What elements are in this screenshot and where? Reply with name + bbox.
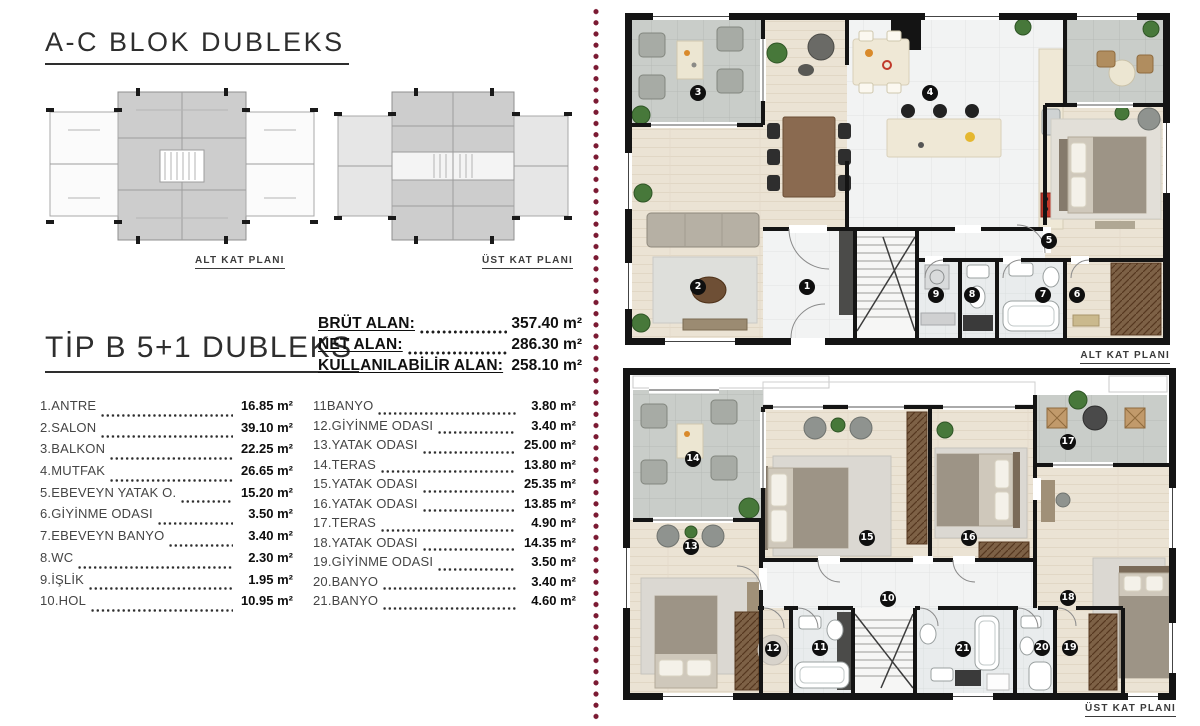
room-area: 1.95 m² [237, 572, 293, 587]
room-list-right: 11BANYO3.80 m²12.GİYİNME ODASI3.40 m²13.… [313, 398, 576, 613]
room-list-item: 21.BANYO4.60 m² [313, 593, 576, 613]
room-list-item: 13.YATAK ODASI25.00 m² [313, 437, 576, 457]
room-number-marker: 6 [1069, 287, 1085, 303]
dot-leader [377, 411, 516, 416]
dot-leader [419, 329, 507, 335]
room-number-marker: 21 [955, 641, 971, 657]
plan-ust-kat-caption: ÜST KAT PLANI [1085, 703, 1176, 717]
dot-leader [382, 586, 516, 591]
dot-leader [380, 528, 516, 533]
dot-leader [437, 567, 516, 572]
room-name: 10.HOL [40, 593, 86, 608]
room-area: 13.80 m² [520, 457, 576, 472]
room-list-item: 1.ANTRE16.85 m² [40, 398, 293, 420]
dot-leader [407, 350, 508, 356]
dot-leader [422, 547, 516, 552]
area-label: NET ALAN: [318, 336, 403, 354]
area-summary-row: KULLANILABİLİR ALAN:258.10 m² [318, 357, 582, 378]
room-area: 3.80 m² [520, 398, 576, 413]
room-name: 4.MUTFAK [40, 463, 105, 478]
dot-leader [168, 543, 233, 548]
room-area: 3.50 m² [237, 506, 293, 521]
room-name: 5.EBEVEYN YATAK O. [40, 485, 176, 500]
area-value: 357.40 m² [511, 315, 582, 333]
room-area: 39.10 m² [237, 420, 293, 435]
room-list-item: 5.EBEVEYN YATAK O.15.20 m² [40, 485, 293, 507]
room-list-item: 3.BALKON22.25 m² [40, 441, 293, 463]
dot-leader [382, 606, 516, 611]
room-name: 6.GİYİNME ODASI [40, 506, 153, 521]
floor-plan-alt-kat: 342198765 [625, 13, 1170, 345]
room-number-marker: 3 [690, 85, 706, 101]
room-area: 26.65 m² [237, 463, 293, 478]
room-area: 25.35 m² [520, 476, 576, 491]
room-number-marker: 18 [1060, 590, 1076, 606]
room-number-marker: 12 [765, 641, 781, 657]
area-summary-row: NET ALAN:286.30 m² [318, 336, 582, 357]
room-list-item: 7.EBEVEYN BANYO3.40 m² [40, 528, 293, 550]
room-area: 22.25 m² [237, 441, 293, 456]
dot-leader [100, 413, 233, 418]
room-name: 9.İŞLİK [40, 572, 84, 587]
floor-plan-ust-kat: 141713151610181211212019 [623, 368, 1180, 700]
dot-leader [422, 450, 516, 455]
thumbnail-ust-kat: ÜST KAT PLANI [330, 86, 580, 271]
room-name: 20.BANYO [313, 574, 378, 589]
room-area: 3.40 m² [520, 418, 576, 433]
room-area: 16.85 m² [237, 398, 293, 413]
room-area: 2.30 m² [237, 550, 293, 565]
room-list-item: 15.YATAK ODASI25.35 m² [313, 476, 576, 496]
thumbnail-alt-kat-drawing [40, 86, 325, 246]
room-area: 4.90 m² [520, 515, 576, 530]
room-name: 16.YATAK ODASI [313, 496, 418, 511]
room-number-marker: 8 [964, 287, 980, 303]
room-name: 8.WC [40, 550, 73, 565]
room-number-marker: 2 [690, 279, 706, 295]
dot-leader [109, 478, 233, 483]
room-name: 7.EBEVEYN BANYO [40, 528, 164, 543]
room-name: 3.BALKON [40, 441, 105, 456]
area-summary-row: BRÜT ALAN:357.40 m² [318, 315, 582, 336]
room-area: 3.50 m² [520, 554, 576, 569]
room-list-item: 6.GİYİNME ODASI3.50 m² [40, 506, 293, 528]
room-number-marker: 7 [1035, 287, 1051, 303]
room-list-item: 9.İŞLİK1.95 m² [40, 572, 293, 594]
floor-plan-alt-kat-drawing [625, 13, 1170, 345]
room-number-marker: 11 [812, 640, 828, 656]
thumbnail-ust-kat-drawing [330, 86, 580, 246]
room-name: 18.YATAK ODASI [313, 535, 418, 550]
area-value: 286.30 m² [511, 336, 582, 354]
room-list-item: 4.MUTFAK26.65 m² [40, 463, 293, 485]
room-number-marker: 4 [922, 85, 938, 101]
thumbnail-alt-kat-caption: ALT KAT PLANI [195, 255, 285, 269]
room-list-item: 11BANYO3.80 m² [313, 398, 576, 418]
floor-plan-brochure-page: { "page": { "title": "A-C BLOK DUBLEKS",… [0, 0, 1200, 726]
room-number-marker: 1 [799, 279, 815, 295]
dotted-divider [593, 6, 599, 720]
room-list-item: 20.BANYO3.40 m² [313, 574, 576, 594]
dot-leader [88, 586, 233, 591]
unit-type-title: TİP B 5+1 DUBLEKS [45, 331, 359, 373]
room-number-marker: 5 [1041, 233, 1057, 249]
dot-leader [422, 489, 516, 494]
room-name: 1.ANTRE [40, 398, 96, 413]
thumbnail-alt-kat: ALT KAT PLANI [40, 86, 325, 271]
dot-leader [77, 565, 233, 570]
room-area: 15.20 m² [237, 485, 293, 500]
room-number-marker: 20 [1034, 640, 1050, 656]
page-title: A-C BLOK DUBLEKS [45, 27, 349, 65]
area-summary: BRÜT ALAN:357.40 m²NET ALAN:286.30 m²KUL… [318, 315, 582, 377]
dot-leader [157, 521, 233, 526]
room-number-marker: 17 [1060, 434, 1076, 450]
room-name: 21.BANYO [313, 593, 378, 608]
room-list-item: 19.GİYİNME ODASI3.50 m² [313, 554, 576, 574]
room-name: 12.GİYİNME ODASI [313, 418, 433, 433]
room-list-item: 16.YATAK ODASI13.85 m² [313, 496, 576, 516]
plan-alt-kat-caption: ALT KAT PLANI [1080, 350, 1170, 364]
area-label: KULLANILABİLİR ALAN: [318, 357, 503, 375]
room-name: 14.TERAS [313, 457, 376, 472]
room-area: 4.60 m² [520, 593, 576, 608]
room-number-marker: 19 [1062, 640, 1078, 656]
area-value: 258.10 m² [511, 357, 582, 375]
room-name: 2.SALON [40, 420, 96, 435]
room-area: 13.85 m² [520, 496, 576, 511]
room-number-marker: 16 [961, 530, 977, 546]
room-list-item: 18.YATAK ODASI14.35 m² [313, 535, 576, 555]
room-name: 19.GİYİNME ODASI [313, 554, 433, 569]
room-list-left: 1.ANTRE16.85 m²2.SALON39.10 m²3.BALKON22… [40, 398, 293, 615]
room-list-item: 17.TERAS4.90 m² [313, 515, 576, 535]
room-list-item: 14.TERAS13.80 m² [313, 457, 576, 477]
area-label: BRÜT ALAN: [318, 315, 415, 333]
room-number-marker: 14 [685, 451, 701, 467]
room-list-item: 2.SALON39.10 m² [40, 420, 293, 442]
room-list-item: 12.GİYİNME ODASI3.40 m² [313, 418, 576, 438]
room-list-item: 8.WC2.30 m² [40, 550, 293, 572]
dot-leader [180, 499, 233, 504]
room-area: 3.40 m² [520, 574, 576, 589]
dot-leader [109, 456, 233, 461]
dot-leader [422, 508, 516, 513]
room-number-marker: 10 [880, 591, 896, 607]
dot-leader [100, 434, 233, 439]
room-area: 25.00 m² [520, 437, 576, 452]
room-name: 17.TERAS [313, 515, 376, 530]
room-name: 15.YATAK ODASI [313, 476, 418, 491]
room-number-marker: 13 [683, 539, 699, 555]
room-area: 10.95 m² [237, 593, 293, 608]
floor-plan-ust-kat-drawing [623, 368, 1180, 700]
room-area: 3.40 m² [237, 528, 293, 543]
room-area: 14.35 m² [520, 535, 576, 550]
room-list-item: 10.HOL10.95 m² [40, 593, 293, 615]
thumbnail-ust-kat-caption: ÜST KAT PLANI [482, 255, 573, 269]
dot-leader [437, 430, 516, 435]
dot-leader [380, 469, 516, 474]
room-number-marker: 15 [859, 530, 875, 546]
dot-leader [90, 608, 233, 613]
room-name: 13.YATAK ODASI [313, 437, 418, 452]
room-number-marker: 9 [928, 287, 944, 303]
room-name: 11BANYO [313, 398, 373, 413]
